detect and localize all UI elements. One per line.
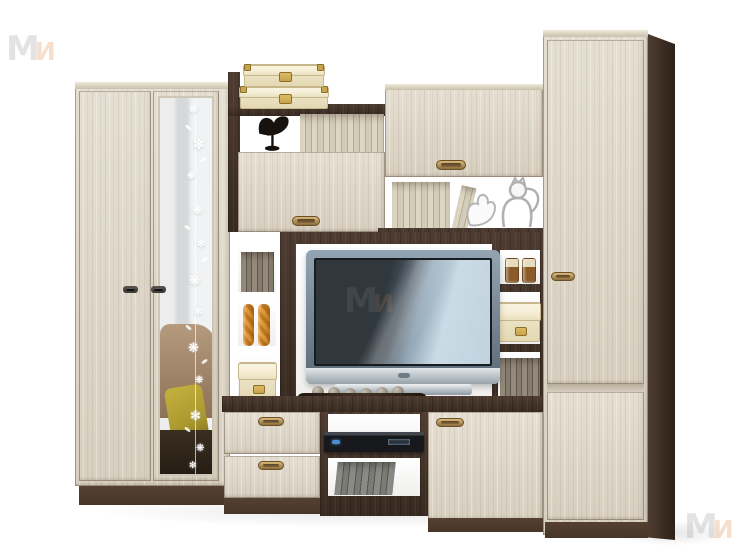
base-plinth-right xyxy=(428,518,544,532)
box-corner xyxy=(240,86,247,93)
leaf-shape xyxy=(184,224,191,230)
wardrobe-handle-left xyxy=(123,286,138,293)
books-row-top xyxy=(300,114,384,152)
flower-icon: ❋ xyxy=(189,104,198,115)
leaf-shape xyxy=(184,426,191,433)
box-clasp xyxy=(515,327,527,336)
watermark-logo-topleft: МИ xyxy=(6,32,56,66)
tall-cabinet-lower-door xyxy=(547,392,644,520)
wardrobe-handle-right xyxy=(151,286,166,293)
flower-icon: ✻ xyxy=(193,138,205,152)
dvd-player xyxy=(324,432,424,452)
wardrobe-top-edge xyxy=(75,82,230,89)
leaf-shape xyxy=(200,156,207,162)
flower-icon: ✻ xyxy=(197,240,205,250)
mirror-floral-pattern: ❋ ✻ ❋ ❋ ✻ ❋ ✻ ❋ ❋ ✻ ❋ ✻ xyxy=(160,98,214,476)
wardrobe-mirror: ❋ ✻ ❋ ❋ ✻ ❋ ✻ ❋ ❋ ✻ ❋ ✻ xyxy=(158,96,214,476)
box-corner xyxy=(317,64,324,71)
flower-icon: ✻ xyxy=(194,308,202,318)
drawer-2-handle xyxy=(258,461,284,470)
storage-box-shelf xyxy=(499,302,540,342)
lower-cabinet-door xyxy=(428,412,543,520)
box-corner xyxy=(321,86,328,93)
box-lid xyxy=(498,303,541,321)
box-clasp xyxy=(279,94,292,104)
cat-figurines xyxy=(462,177,544,229)
flower-icon: ❋ xyxy=(195,376,203,386)
leaf-shape xyxy=(185,324,192,331)
flower-icon: ❋ xyxy=(188,342,199,355)
leaf-shape xyxy=(201,256,208,263)
flower-icon: ❋ xyxy=(192,204,203,217)
flap-cabinet-handle xyxy=(292,216,320,226)
bird-sculpture xyxy=(252,110,296,152)
tall-cabinet-plinth xyxy=(545,522,648,538)
flower-icon: ✻ xyxy=(190,410,201,423)
bottom-board xyxy=(222,396,543,412)
flower-icon: ❋ xyxy=(189,274,201,288)
tall-cabinet-upper-door xyxy=(547,40,644,384)
storage-box-lower xyxy=(240,86,328,109)
books-row-shelf xyxy=(392,182,450,228)
tall-cabinet-divider xyxy=(547,384,644,392)
tall-cabinet-handle xyxy=(551,272,575,281)
flower-icon: ✻ xyxy=(189,462,197,471)
storage-box-upper xyxy=(244,64,324,87)
dvd-display xyxy=(388,439,410,445)
box-lid xyxy=(238,363,277,380)
product-photo-stage: ❋ ✻ ❋ ❋ ✻ ❋ ✻ ❋ ❋ ✻ ❋ ✻ xyxy=(0,0,740,555)
screen-reflection xyxy=(316,260,490,364)
wardrobe-plinth xyxy=(79,486,227,505)
wall-cabinet-handle xyxy=(436,160,466,170)
tv-logo xyxy=(398,373,410,378)
leaf-shape xyxy=(185,124,192,131)
jar-candle xyxy=(522,258,536,283)
storage-box-left xyxy=(239,362,276,400)
tv-speaker-bar xyxy=(306,368,500,384)
leaf-shape xyxy=(201,358,208,364)
tall-cabinet-side-panel xyxy=(648,34,675,540)
box-clasp xyxy=(279,72,292,82)
lower-cabinet-handle xyxy=(436,418,464,427)
wall-cabinet-top-edge xyxy=(385,84,543,90)
drawer-1-handle xyxy=(258,417,284,426)
tv-screen: МИ xyxy=(314,258,492,366)
books-row-media xyxy=(334,462,395,495)
twist-candle xyxy=(243,304,254,346)
dvd-power-led xyxy=(332,440,340,444)
tall-cabinet-top-edge xyxy=(543,30,648,37)
twist-candle xyxy=(258,304,270,346)
flower-icon: ❋ xyxy=(187,172,195,182)
box-clasp xyxy=(253,385,265,394)
flower-icon: ❋ xyxy=(196,444,204,454)
books-row-left xyxy=(241,252,274,292)
box-corner xyxy=(244,64,251,71)
watermark-on-screen: МИ xyxy=(344,284,394,318)
jar-candle xyxy=(505,258,519,283)
watermark-logo-bottomright: МИ xyxy=(684,510,734,544)
wardrobe-door-left xyxy=(79,91,151,481)
